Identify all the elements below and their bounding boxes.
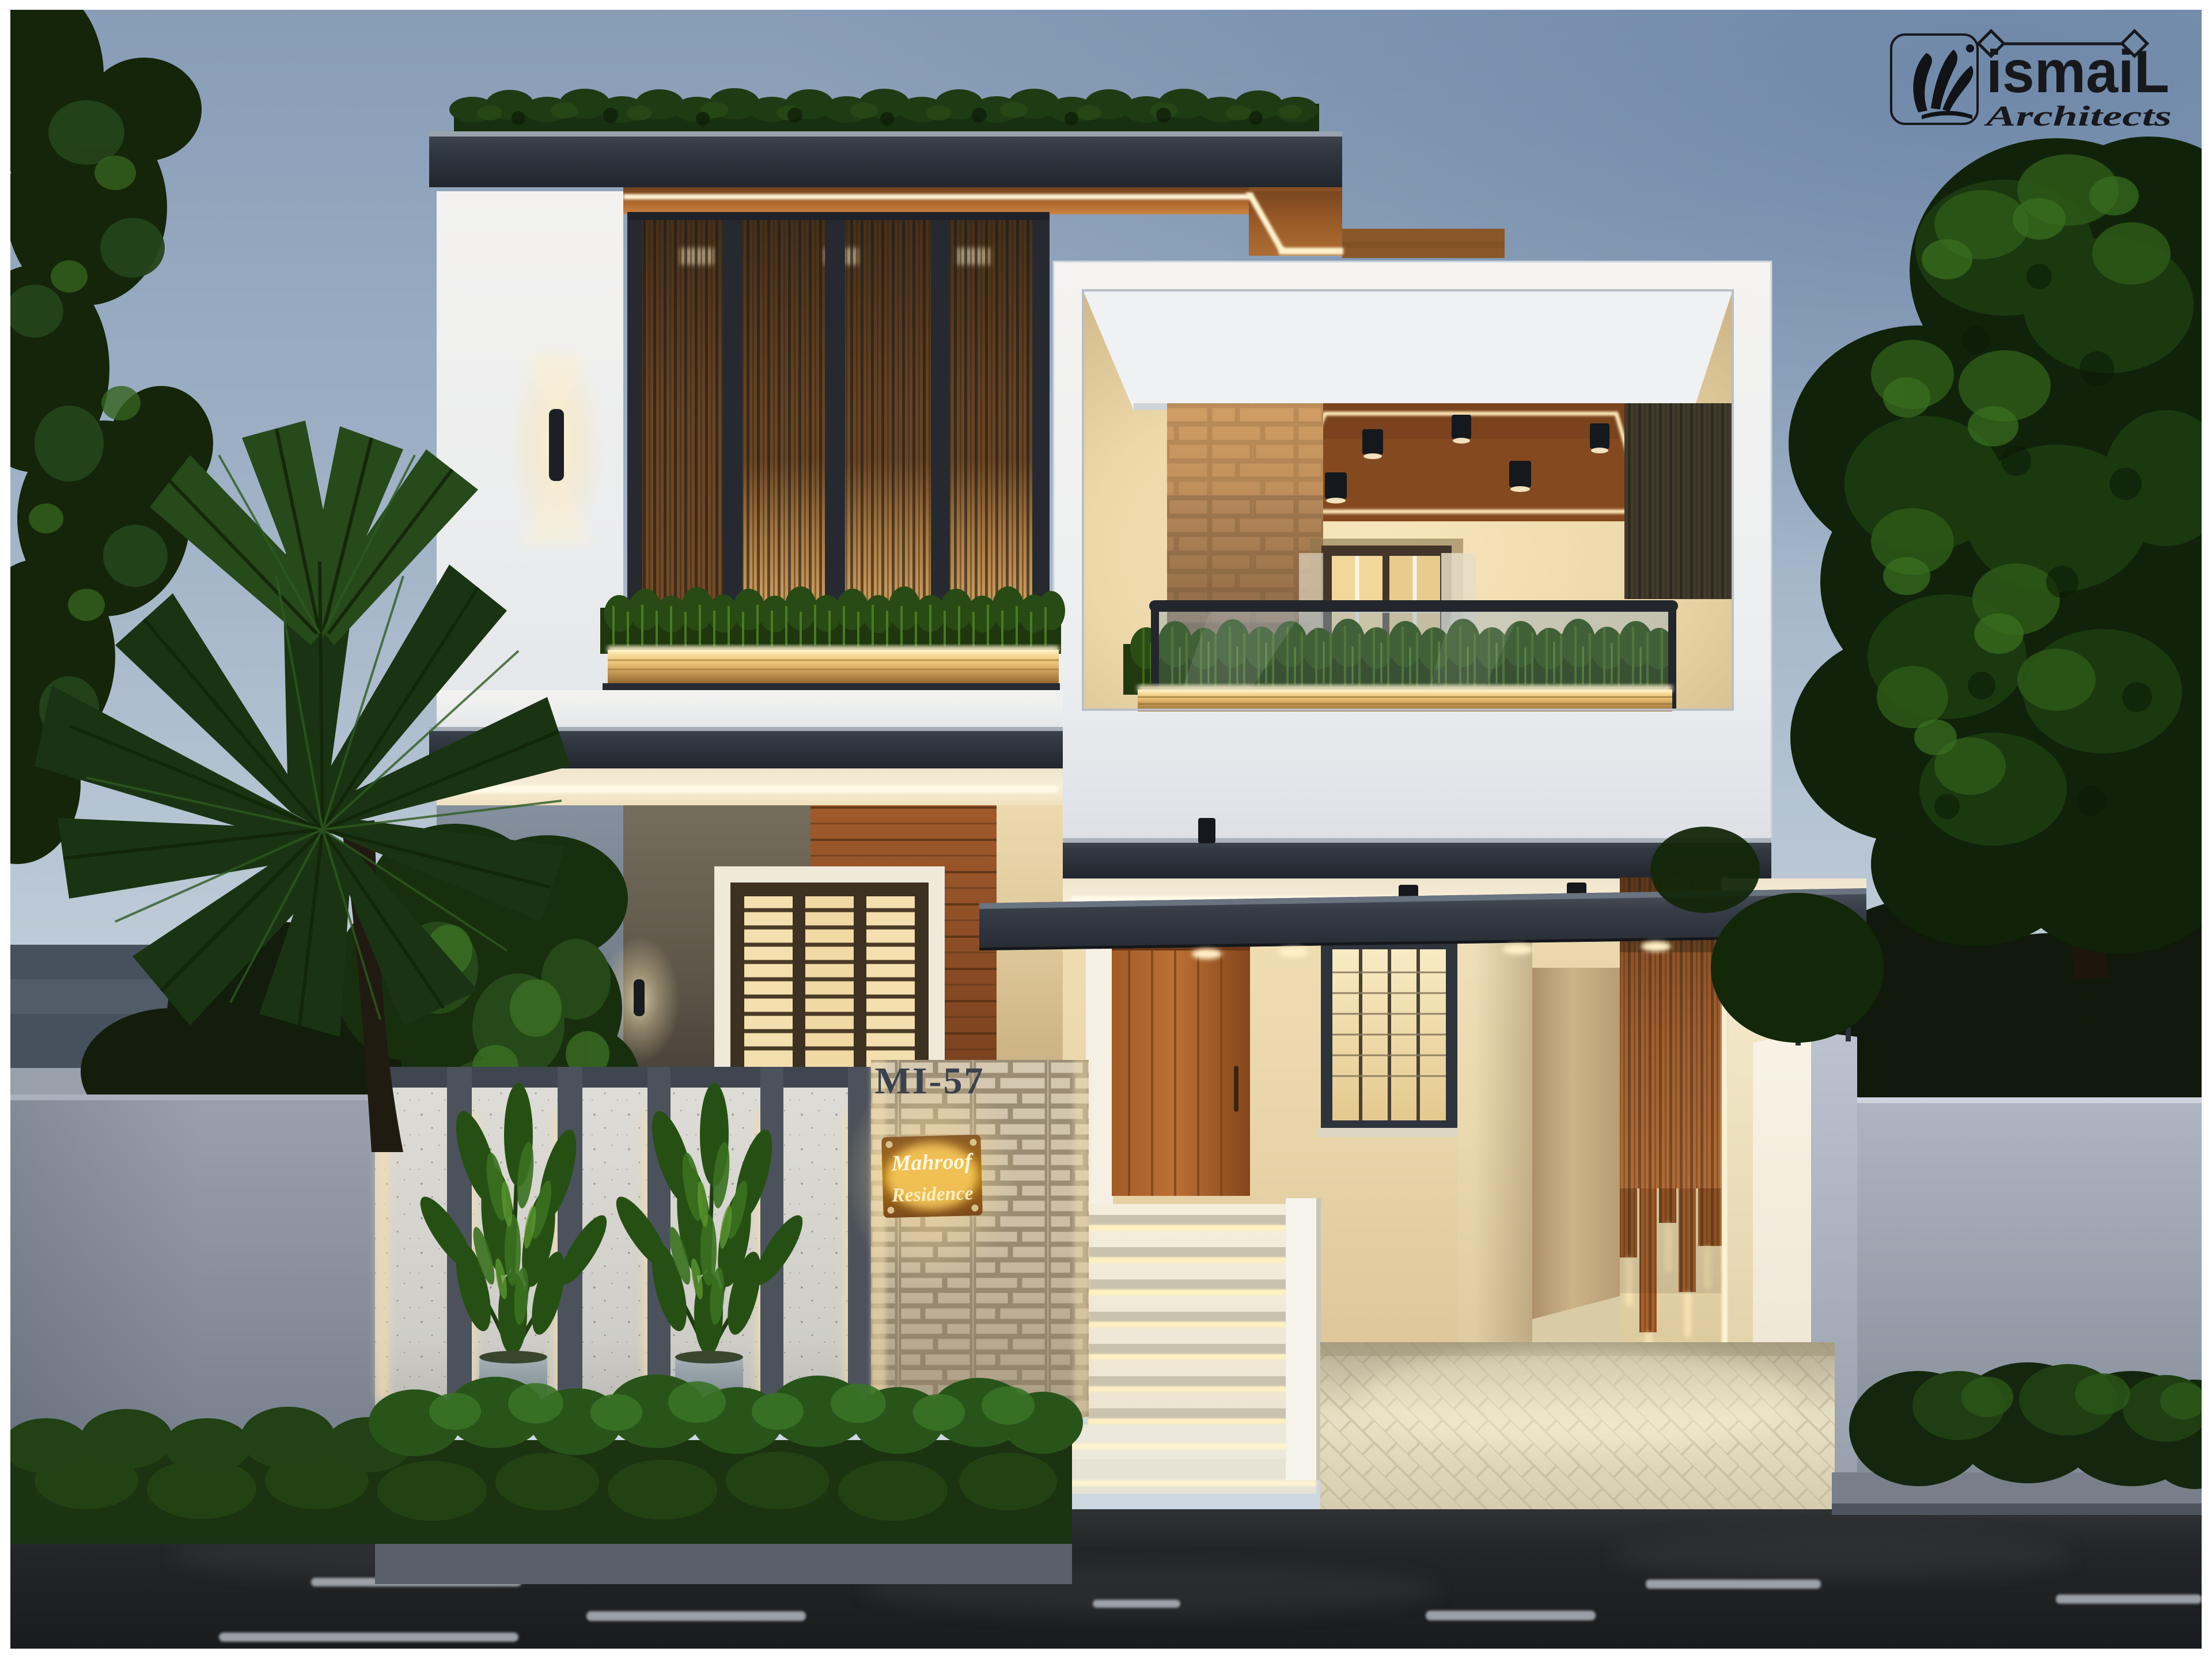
- svg-text:Mahroof: Mahroof: [891, 1149, 974, 1176]
- svg-text:Residence: Residence: [891, 1183, 974, 1206]
- svg-text:ismaiL: ismaiL: [1986, 39, 2169, 105]
- svg-text:Architects: Architects: [1983, 100, 2172, 132]
- svg-text:MI-57: MI-57: [875, 1060, 985, 1102]
